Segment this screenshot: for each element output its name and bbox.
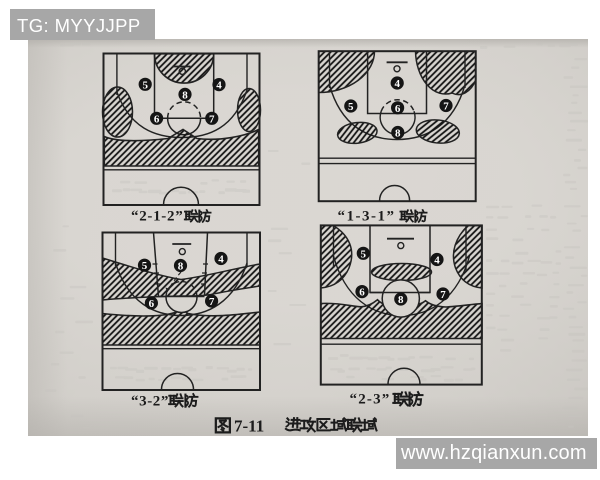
svg-text:4: 4 bbox=[434, 255, 440, 267]
svg-text:5: 5 bbox=[142, 79, 148, 91]
svg-text:7: 7 bbox=[440, 289, 446, 301]
svg-text:5: 5 bbox=[361, 248, 367, 260]
svg-text:6: 6 bbox=[395, 103, 401, 115]
svg-text:“2-1-2”: “2-1-2” bbox=[131, 209, 183, 225]
svg-text:7: 7 bbox=[209, 296, 215, 308]
svg-text:6: 6 bbox=[359, 287, 365, 299]
svg-text:5: 5 bbox=[348, 101, 354, 113]
svg-text:8: 8 bbox=[178, 261, 184, 273]
svg-text:6: 6 bbox=[149, 298, 155, 310]
svg-text:7-11: 7-11 bbox=[234, 417, 264, 436]
svg-text:8: 8 bbox=[182, 89, 188, 101]
svg-text:7: 7 bbox=[209, 113, 215, 125]
svg-text:8: 8 bbox=[398, 294, 404, 306]
svg-text:6: 6 bbox=[154, 113, 160, 125]
svg-text:“1-3-1”: “1-3-1” bbox=[338, 209, 396, 225]
svg-text:“3-2”: “3-2” bbox=[131, 394, 169, 410]
svg-text:8: 8 bbox=[395, 128, 401, 140]
svg-text:7: 7 bbox=[443, 101, 449, 113]
svg-text:4: 4 bbox=[218, 254, 224, 266]
svg-text:4: 4 bbox=[394, 78, 400, 90]
svg-text:4: 4 bbox=[216, 80, 222, 92]
svg-text:5: 5 bbox=[142, 260, 148, 272]
svg-text:“2-3”: “2-3” bbox=[350, 392, 391, 408]
